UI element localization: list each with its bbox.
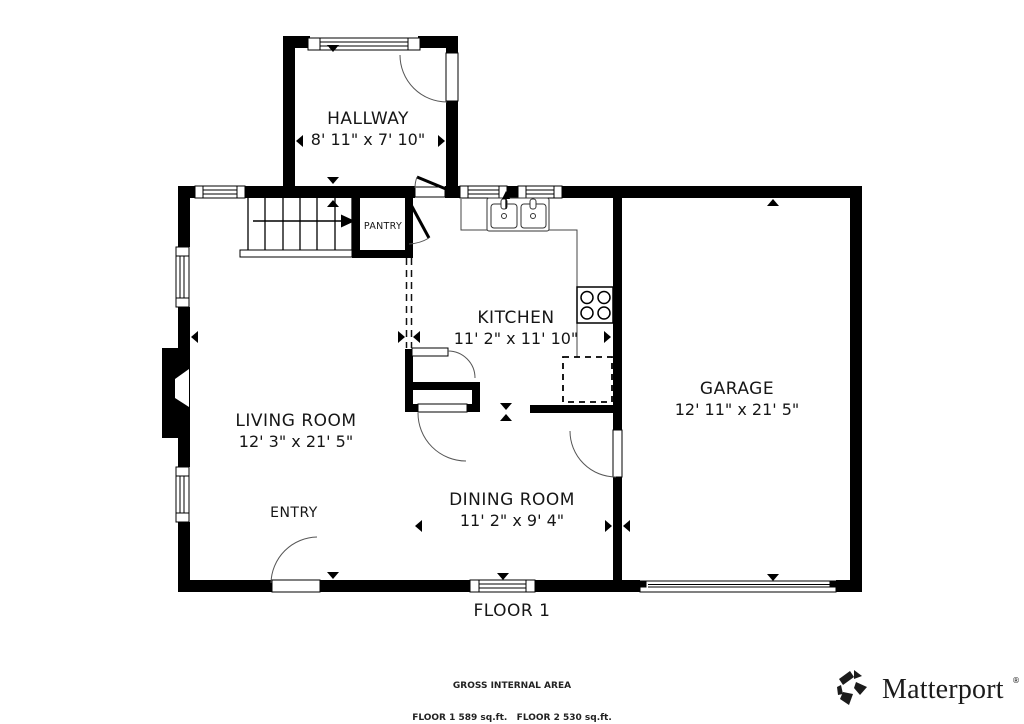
- hallway-front-door: [400, 53, 458, 102]
- kitchen-sink: [487, 198, 549, 231]
- floor-plan-drawing: HALLWAY 8' 11" x 7' 10" PANTRY KITCHEN 1…: [0, 0, 1024, 724]
- marker-right-icon: [604, 331, 611, 343]
- matterport-logo-icon: [836, 668, 878, 712]
- marker-left-icon: [191, 331, 198, 343]
- marker-down-icon: [497, 573, 509, 580]
- living-room-top-window: [195, 186, 245, 198]
- floor-plan-page: HALLWAY 8' 11" x 7' 10" PANTRY KITCHEN 1…: [0, 0, 1024, 724]
- stove: [577, 287, 613, 323]
- living-room-dims: 12' 3" x 21' 5": [239, 432, 353, 451]
- marker-down-icon: [327, 572, 339, 579]
- marker-up-icon: [327, 200, 339, 207]
- entry-label: ENTRY: [270, 505, 318, 521]
- hallway-window: [308, 38, 420, 50]
- entry-door: [271, 537, 320, 592]
- marker-left-icon: [413, 331, 420, 343]
- garage-door: [640, 581, 836, 592]
- kitchen-label: KITCHEN: [477, 308, 554, 328]
- marker-down-icon: [327, 177, 339, 184]
- open-passage-dashed: [407, 258, 412, 348]
- living-room-label: LIVING ROOM: [235, 411, 356, 431]
- pantry-label: PANTRY: [364, 221, 402, 232]
- living-room-left-window-1: [176, 247, 189, 307]
- floor-title: FLOOR 1: [474, 601, 551, 621]
- registered-mark: ®: [1012, 676, 1020, 685]
- kitchen-window-1: [460, 186, 507, 198]
- closet-upper-door: [412, 348, 475, 378]
- living-room-left-window-2: [176, 467, 189, 522]
- closet-lower-door: [418, 404, 467, 461]
- appliance-dashed-outline: [563, 357, 612, 402]
- garage-dims: 12' 11" x 21' 5": [675, 400, 800, 419]
- marker-left-icon: [415, 520, 422, 532]
- room-labels: HALLWAY 8' 11" x 7' 10" PANTRY KITCHEN 1…: [235, 109, 799, 621]
- marker-down-icon: [500, 403, 512, 410]
- marker-up-icon: [500, 414, 512, 421]
- marker-down-icon: [767, 574, 779, 581]
- marker-left-icon: [623, 520, 630, 532]
- garage-entry-door: [570, 430, 622, 477]
- dining-room-dims: 11' 2" x 9' 4": [460, 511, 564, 530]
- marker-left-icon: [296, 135, 303, 147]
- matterport-branding: Matterport ®: [836, 668, 1021, 716]
- marker-right-icon: [438, 135, 445, 147]
- marker-up-icon: [767, 199, 779, 206]
- matterport-logo-text: Matterport: [882, 674, 1004, 706]
- garage-label: GARAGE: [700, 379, 774, 399]
- dining-room-window: [470, 580, 535, 592]
- dining-room-label: DINING ROOM: [449, 490, 575, 510]
- hallway-label: HALLWAY: [327, 109, 409, 129]
- hallway-kitchen-door: [415, 177, 446, 197]
- hallway-dims: 8' 11" x 7' 10": [311, 130, 425, 149]
- marker-right-icon: [605, 520, 612, 532]
- marker-right-icon: [398, 331, 405, 343]
- kitchen-dims: 11' 2" x 11' 10": [454, 329, 579, 348]
- fireplace: [162, 348, 190, 438]
- kitchen-window-2: [518, 186, 562, 198]
